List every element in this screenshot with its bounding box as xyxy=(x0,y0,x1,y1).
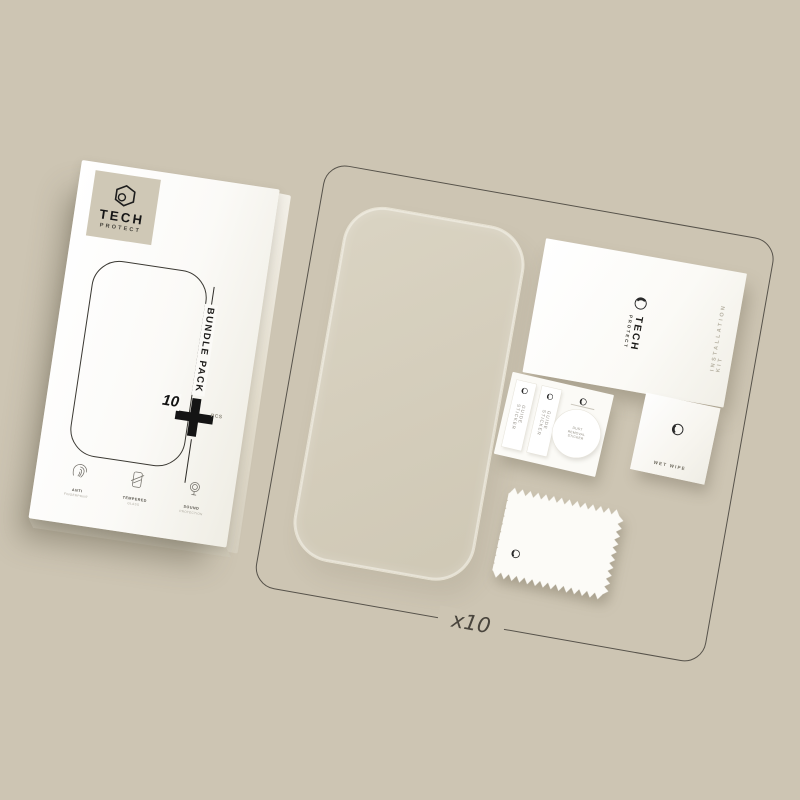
speaker-protection-icon xyxy=(183,477,206,505)
wet-wipe-label: WET WIPE xyxy=(653,460,686,472)
installation-kit-label: INSTALLATION KIT xyxy=(710,303,734,372)
techprotect-ring-logo-icon xyxy=(519,381,531,400)
callout-line xyxy=(211,287,215,305)
retail-box: TECH PROTECT BUNDLE PACK 10 PCS xyxy=(28,160,279,548)
product-photo: TECH PROTECT BUNDLE PACK 10 PCS xyxy=(0,0,800,800)
tempered-glass-icon xyxy=(125,468,148,496)
bundle-pack-label: BUNDLE PACK xyxy=(191,304,217,397)
quantity-group: 10 PCS xyxy=(171,395,216,440)
techprotect-ring-logo-icon xyxy=(627,293,650,312)
quantity-label: x10 xyxy=(436,605,506,640)
sticker-sheet: GUIDE STICKER GUIDE STICKER D xyxy=(494,372,614,477)
tempered-glass-protector xyxy=(287,201,531,587)
brand-logo-plate: TECH PROTECT xyxy=(86,170,161,245)
feature-anti-fingerprint: ANTI FINGERPRINT xyxy=(50,457,107,502)
feature-tempered-glass: TEMPERED GLASS xyxy=(108,466,165,511)
guide-sticker-label: GUIDE STICKER xyxy=(532,409,552,455)
cloth-zigzag-shape xyxy=(491,486,626,602)
guide-sticker-label: GUIDE STICKER xyxy=(507,403,527,449)
dust-removal-label: DUST REMOVAL STICKER xyxy=(563,425,590,443)
card-brand-logo: TECH PROTECT xyxy=(620,293,650,352)
wet-wipe-sachet: WET WIPE xyxy=(630,393,721,485)
microfiber-cloth xyxy=(491,486,626,602)
techprotect-ring-logo-icon xyxy=(667,399,690,443)
techprotect-ring-logo-icon xyxy=(544,387,556,406)
feature-sound-protection: SOUND PROTECTION xyxy=(165,475,222,520)
fingerprint-icon xyxy=(68,460,91,488)
kit-outline-panel: TECH PROTECT INSTALLATION KIT GUIDE STIC… xyxy=(252,162,777,665)
hexagon-logo-icon xyxy=(112,182,139,209)
quantity-number: 10 xyxy=(160,392,181,412)
